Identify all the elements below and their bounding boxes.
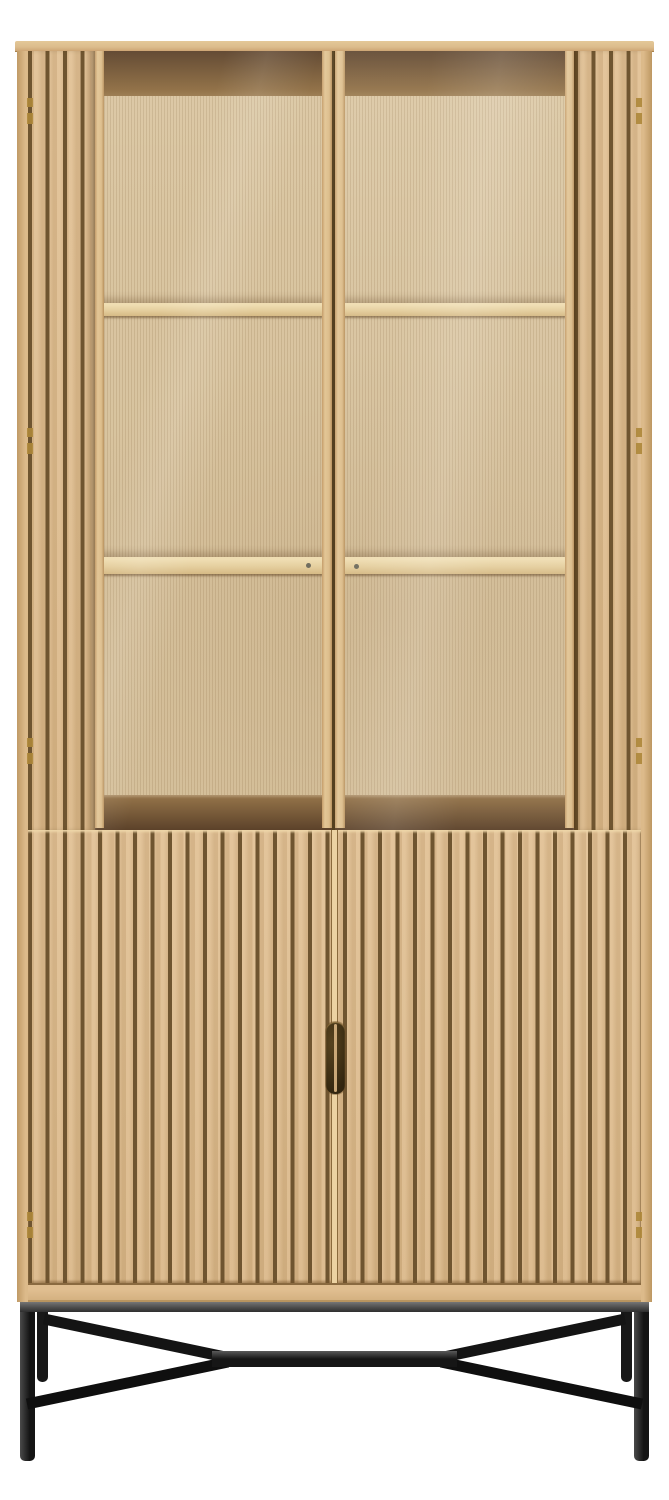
hinge <box>27 738 33 764</box>
shelf-peg-right <box>354 564 359 569</box>
base-top-rail <box>20 1302 649 1312</box>
product-photo-canvas <box>0 0 669 1500</box>
glass-door-right-center-stile <box>335 51 345 828</box>
hinge <box>636 738 642 764</box>
glass-door-right-outer-stile <box>565 51 574 828</box>
base-back-left-leg <box>37 1312 48 1382</box>
base-center-stretcher <box>212 1351 457 1367</box>
cabinet-bottom-rail <box>28 1283 641 1302</box>
left-slat-panel <box>28 51 95 830</box>
hinge <box>27 98 33 124</box>
base-front-left-leg <box>20 1312 35 1461</box>
right-slat-panel <box>574 51 641 830</box>
door-handle-divider <box>334 1024 337 1092</box>
base-back-right-leg <box>621 1312 632 1382</box>
base-front-right-leg <box>634 1312 649 1461</box>
door-handle-recess <box>326 1022 345 1094</box>
hinge <box>27 428 33 454</box>
hinge <box>636 1212 642 1238</box>
shelf-peg-left <box>306 563 311 568</box>
glass-door-left-center-stile <box>322 51 332 828</box>
cabinet-right-edge <box>640 51 652 1302</box>
glass-door-left-outer-stile <box>95 51 104 828</box>
hinge <box>636 98 642 124</box>
display-compartment <box>95 51 574 830</box>
lower-slat-doors <box>28 830 641 1283</box>
hinge <box>636 428 642 454</box>
hinge <box>27 1212 33 1238</box>
